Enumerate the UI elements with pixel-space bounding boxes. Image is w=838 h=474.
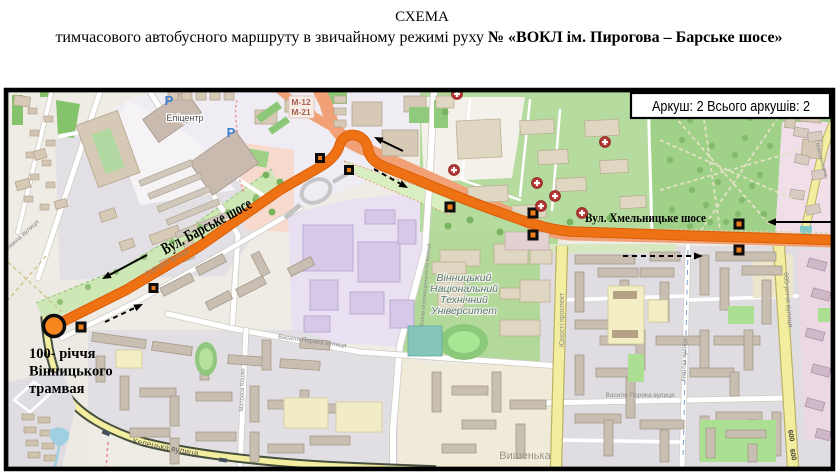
svg-text:100- річчя: 100- річчя xyxy=(29,346,96,362)
svg-text:Юності проспект: Юності проспект xyxy=(558,292,566,347)
svg-text:Вінницького: Вінницького xyxy=(29,364,113,380)
svg-text:Вул. Хмельницьке шосе: Вул. Хмельницьке шосе xyxy=(585,211,706,225)
svg-text:Аркуш: 2 Всього аркушів: 2: Аркуш: 2 Всього аркушів: 2 xyxy=(652,99,810,115)
svg-text:P: P xyxy=(227,125,236,140)
svg-text:Вишенька: Вишенька xyxy=(499,450,551,462)
svg-text:Епіцентр: Епіцентр xyxy=(166,113,203,123)
svg-text:трамвая: трамвая xyxy=(29,381,85,397)
svg-text:М-12: М-12 xyxy=(291,97,311,107)
svg-text:Університет: Університет xyxy=(430,305,497,317)
svg-text:Василя Порика вулиця: Василя Порика вулиця xyxy=(606,392,675,399)
svg-text:М-21: М-21 xyxy=(291,107,311,117)
svg-text:P: P xyxy=(165,93,174,108)
